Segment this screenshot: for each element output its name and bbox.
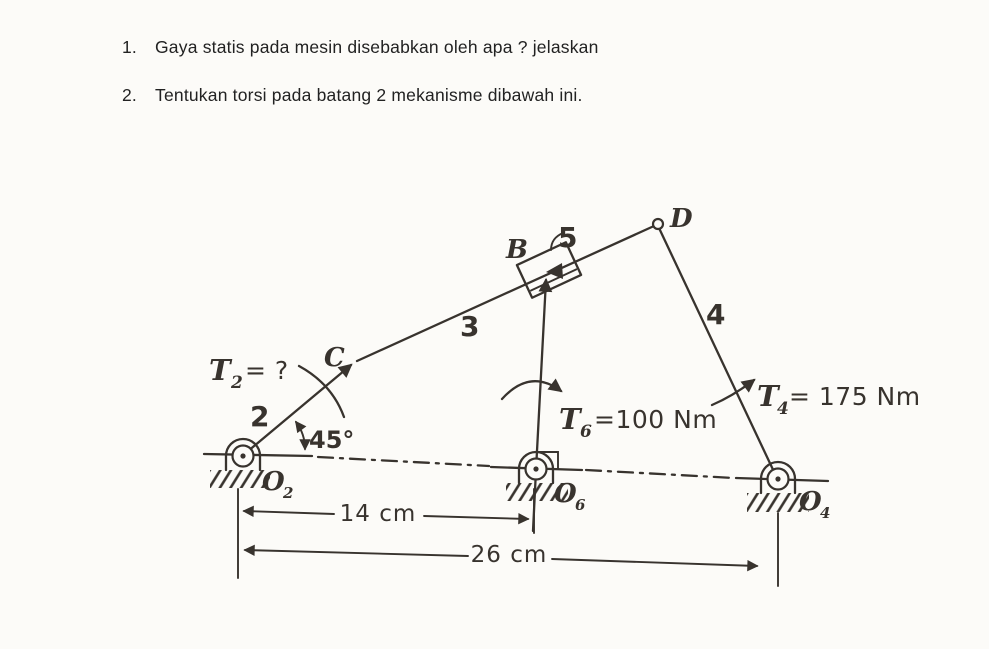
centerline-dashdot-left (318, 457, 489, 466)
point-d-label: D (669, 204, 693, 234)
centerline-solid-o2 (204, 454, 312, 456)
t2-symbol: T (209, 353, 233, 387)
slider-center-arrow-icon (546, 263, 563, 279)
link-5-label: 5 (558, 221, 577, 254)
t4-sub: 4 (777, 399, 789, 419)
frame-centerline (204, 454, 828, 481)
pivot-o6-center (533, 466, 538, 471)
t4-value: = 175 Nm (789, 382, 921, 411)
t6-sub: 6 (580, 422, 592, 442)
pivot-o6-label-sub: 6 (575, 496, 586, 514)
link-4-label: 4 (706, 298, 725, 331)
pivot-o4-center (775, 476, 780, 481)
pivot-o6-label: O (554, 479, 577, 509)
link-4-line (659, 228, 776, 476)
pivot-o2 (210, 439, 270, 488)
dimensions (238, 489, 778, 586)
mechanism-diagram: T 2 = ? C 2 45° 3 B 5 D 4 T 6 =100 Nm T … (0, 0, 989, 649)
pivot-o4-label-sub: 4 (820, 504, 830, 522)
pivot-o2-ground-hatch (210, 470, 270, 488)
t2-value: = ? (245, 356, 289, 385)
centerline-dashdot-right (586, 470, 734, 478)
t6-value: =100 Nm (594, 405, 717, 434)
dim26-left-arrow (245, 550, 468, 556)
angle-45-arrow-icon (296, 422, 305, 449)
dim-26cm-label: 26 cm (471, 542, 548, 568)
t2-sub: 2 (230, 373, 243, 393)
pivot-o2-label: O (262, 467, 285, 497)
angle-45-label: 45° (309, 426, 354, 454)
joint-d (653, 219, 663, 229)
point-b-label: B (505, 235, 528, 265)
pivot-o4-label: O (799, 487, 822, 517)
dim26-right-arrow (552, 559, 757, 566)
pivot-o2-center (240, 453, 245, 458)
dim14-left-arrow (244, 511, 334, 514)
pivot-o2-label-sub: 2 (282, 484, 293, 502)
point-c-label: C (324, 343, 345, 373)
link-2-label: 2 (250, 400, 269, 433)
torque-t6-arrow-icon (502, 381, 561, 399)
torque-t2-arc-icon (299, 366, 344, 417)
dim-14cm-label: 14 cm (340, 501, 417, 527)
link-3-label: 3 (460, 310, 479, 343)
dim14-right-arrow (424, 516, 528, 519)
